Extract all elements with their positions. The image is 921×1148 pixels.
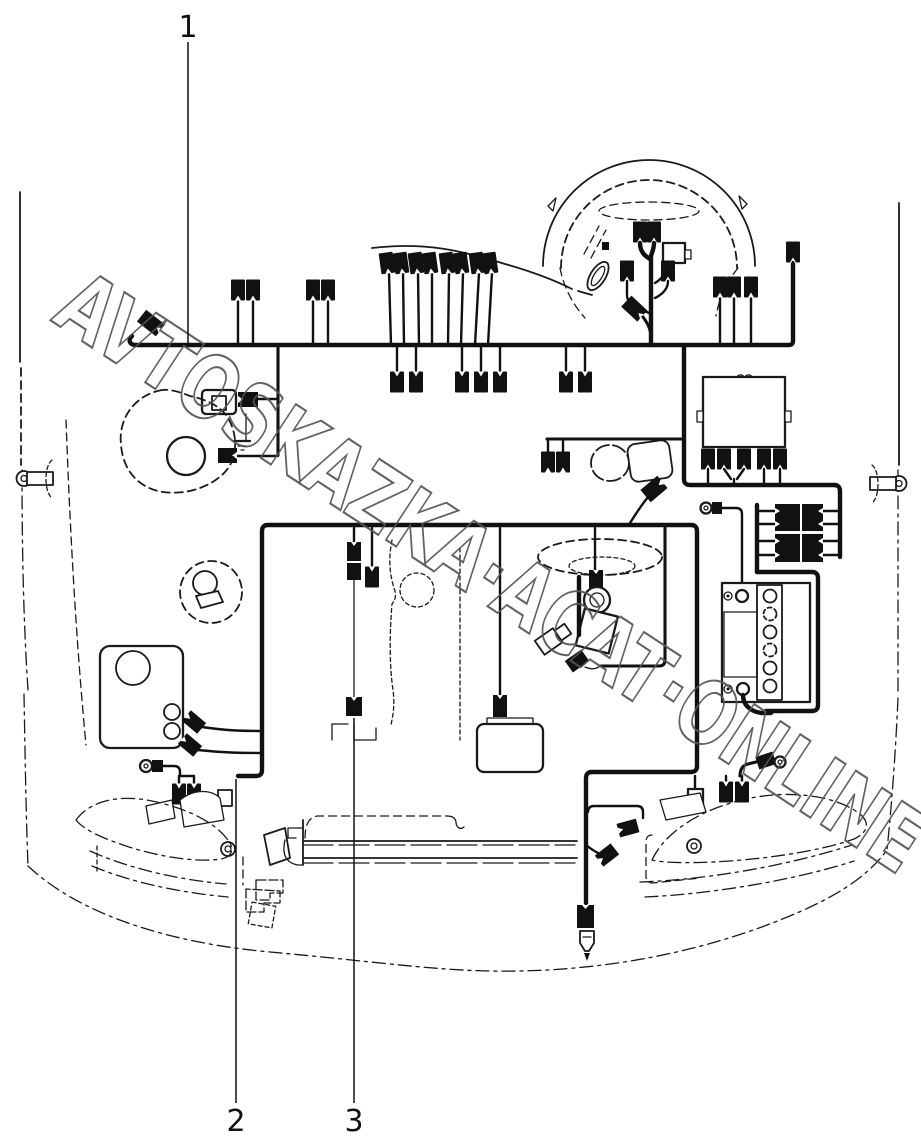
wiring-diagram-svg: AVTOSKAZKA·ACAT·ONLINE 1 2 3 [0, 0, 921, 1148]
battery-positive-lead [701, 502, 743, 588]
top-connector-pair-1 [231, 280, 260, 346]
right-side-marker [870, 465, 907, 503]
below-line-connectors [390, 347, 592, 393]
callout-3-label[interactable]: 3 [344, 1104, 363, 1139]
parts-diagram-canvas: AVTOSKAZKA·ACAT·ONLINE 1 2 3 [0, 0, 921, 1148]
connector-bank [757, 504, 840, 562]
fuel-filler [180, 561, 242, 623]
left-headlamp [76, 792, 280, 913]
washer-reservoir [100, 646, 262, 806]
connector-pair-row [757, 534, 840, 548]
top-connector-pair-2 [306, 280, 335, 346]
steering-column-harness [583, 222, 691, 346]
callout-1[interactable]: 1 [178, 10, 197, 343]
connector-pair-row [757, 517, 840, 531]
ground-ring-terminal [140, 760, 163, 772]
callout-1-label[interactable]: 1 [178, 10, 197, 45]
callout-2[interactable]: 2 [226, 779, 245, 1139]
radiator [248, 816, 577, 928]
connector-pair-row [757, 504, 840, 518]
fog-lamp-bulb [577, 905, 594, 961]
callout-3[interactable]: 3 [344, 718, 363, 1139]
top-connector-fan [379, 252, 499, 345]
left-side-marker [17, 460, 54, 498]
column-module [663, 243, 685, 263]
top-connector-trio [713, 277, 758, 346]
washer-pump [477, 695, 543, 772]
bumper-bracket [248, 880, 283, 928]
connector-pair-row [757, 548, 840, 562]
relay-box [697, 375, 791, 485]
ignition-switch [583, 258, 613, 293]
horn-assembly [541, 439, 682, 523]
callout-2-label[interactable]: 2 [226, 1104, 245, 1139]
